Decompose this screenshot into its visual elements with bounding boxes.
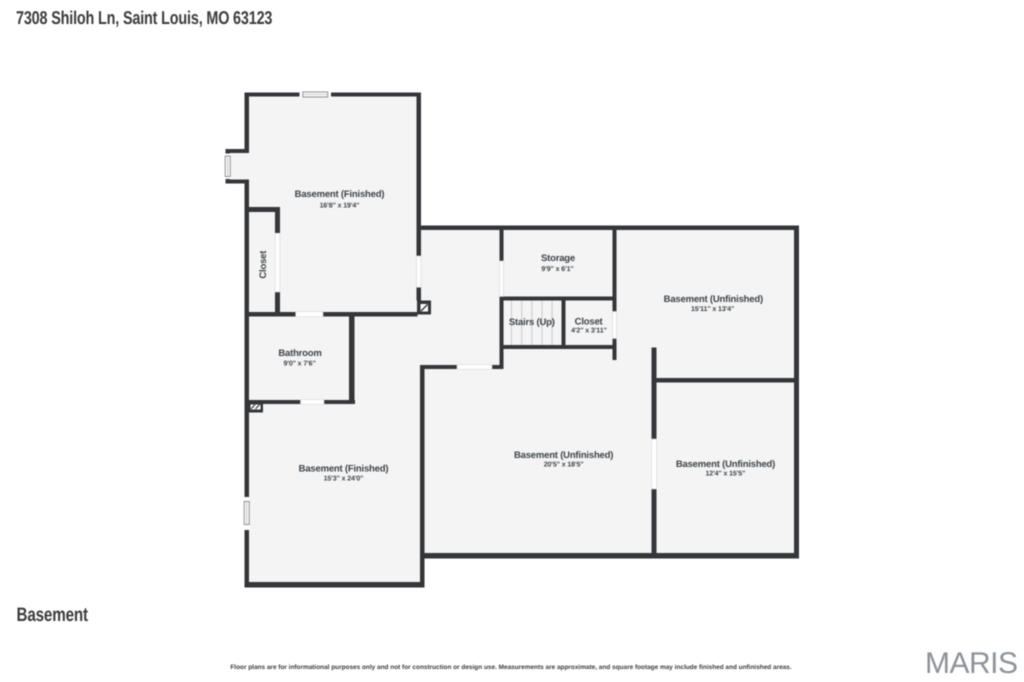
svg-text:12'4" x 15'5": 12'4" x 15'5" xyxy=(705,471,745,478)
svg-text:15'3" x 24'0": 15'3" x 24'0" xyxy=(324,476,364,483)
svg-text:Floor plans are for informatio: Floor plans are for informational purpos… xyxy=(230,664,791,671)
svg-text:Basement (Unfinished): Basement (Unfinished) xyxy=(676,459,775,470)
svg-text:7308 Shiloh Ln, Saint Louis, M: 7308 Shiloh Ln, Saint Louis, MO 63123 xyxy=(16,7,272,28)
svg-text:Basement (Finished): Basement (Finished) xyxy=(299,463,389,474)
svg-text:Storage: Storage xyxy=(541,253,575,264)
svg-text:4'2" x 3'11": 4'2" x 3'11" xyxy=(571,328,607,335)
svg-text:20'5" x 18'5": 20'5" x 18'5" xyxy=(544,462,584,469)
svg-text:Basement: Basement xyxy=(17,604,89,626)
svg-text:Basement (Finished): Basement (Finished) xyxy=(295,189,385,200)
svg-text:Stairs (Up): Stairs (Up) xyxy=(509,317,555,328)
svg-text:MARIS: MARIS xyxy=(925,647,1018,680)
svg-text:Basement (Unfinished): Basement (Unfinished) xyxy=(664,294,763,305)
svg-text:9'0" x 7'6": 9'0" x 7'6" xyxy=(283,361,315,368)
svg-text:Basement (Unfinished): Basement (Unfinished) xyxy=(514,450,613,461)
svg-text:16'8" x 19'4": 16'8" x 19'4" xyxy=(320,202,360,209)
svg-text:9'9" x 6'1": 9'9" x 6'1" xyxy=(541,266,573,273)
svg-text:Closet: Closet xyxy=(258,250,269,279)
svg-text:Closet: Closet xyxy=(575,316,604,327)
svg-text:Bathroom: Bathroom xyxy=(278,348,321,359)
svg-text:15'11" x 13'4": 15'11" x 13'4" xyxy=(691,306,734,313)
